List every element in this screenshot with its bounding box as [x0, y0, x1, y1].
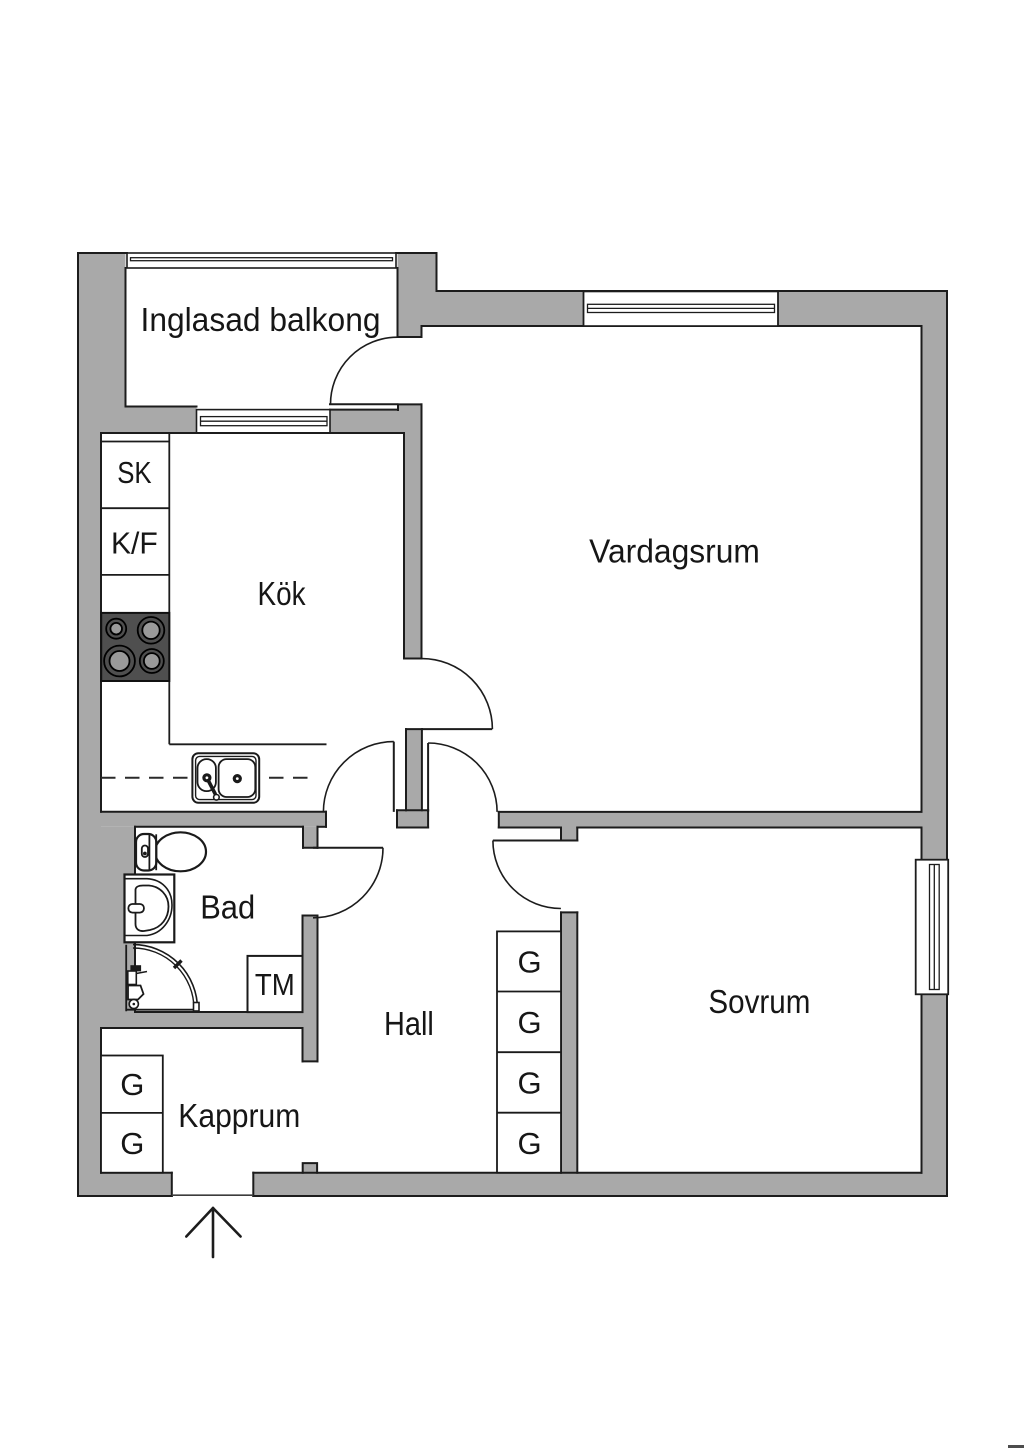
svg-text:G: G — [120, 1126, 144, 1161]
svg-text:SK: SK — [117, 455, 152, 490]
svg-text:G: G — [517, 1126, 541, 1161]
svg-text:K/F: K/F — [111, 526, 158, 561]
svg-text:G: G — [120, 1067, 144, 1102]
svg-text:Sovrum: Sovrum — [708, 983, 810, 1020]
svg-text:Vardagsrum: Vardagsrum — [589, 533, 760, 570]
svg-text:Inglasad balkong: Inglasad balkong — [141, 301, 381, 338]
svg-text:G: G — [517, 945, 541, 980]
svg-text:Bad: Bad — [200, 888, 255, 925]
svg-text:Kök: Kök — [258, 575, 306, 612]
svg-text:G: G — [517, 1066, 541, 1101]
svg-text:Kapprum: Kapprum — [178, 1097, 300, 1134]
svg-text:TM: TM — [255, 967, 295, 1002]
svg-text:G: G — [517, 1005, 541, 1040]
svg-text:Hall: Hall — [384, 1005, 434, 1042]
